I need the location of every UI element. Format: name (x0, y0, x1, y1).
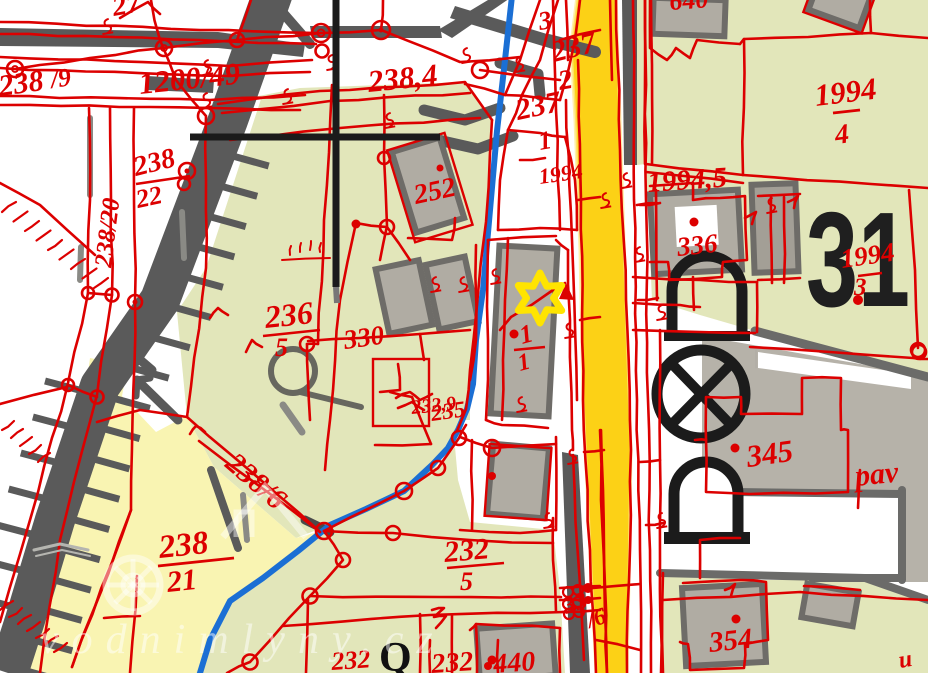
svg-text:1994,5: 1994,5 (646, 161, 728, 198)
svg-text:345: 345 (743, 433, 795, 474)
svg-text:238: 238 (156, 525, 210, 566)
svg-text:354: 354 (706, 623, 754, 659)
svg-text:238,4: 238,4 (365, 57, 439, 99)
svg-text:5: 5 (275, 333, 288, 362)
svg-text:640: 640 (668, 0, 709, 16)
svg-text:3: 3 (853, 274, 867, 301)
svg-text:330: 330 (341, 320, 387, 356)
svg-text:236: 236 (262, 294, 314, 335)
svg-text:238: 238 (0, 64, 46, 103)
svg-text:1994: 1994 (813, 71, 879, 113)
svg-text:5: 5 (460, 567, 473, 596)
svg-text:336: 336 (674, 228, 719, 262)
svg-text:21: 21 (164, 563, 198, 599)
svg-text:440: 440 (491, 646, 536, 673)
svg-text:vodnimlyny.cz: vodnimlyny.cz (40, 617, 446, 663)
